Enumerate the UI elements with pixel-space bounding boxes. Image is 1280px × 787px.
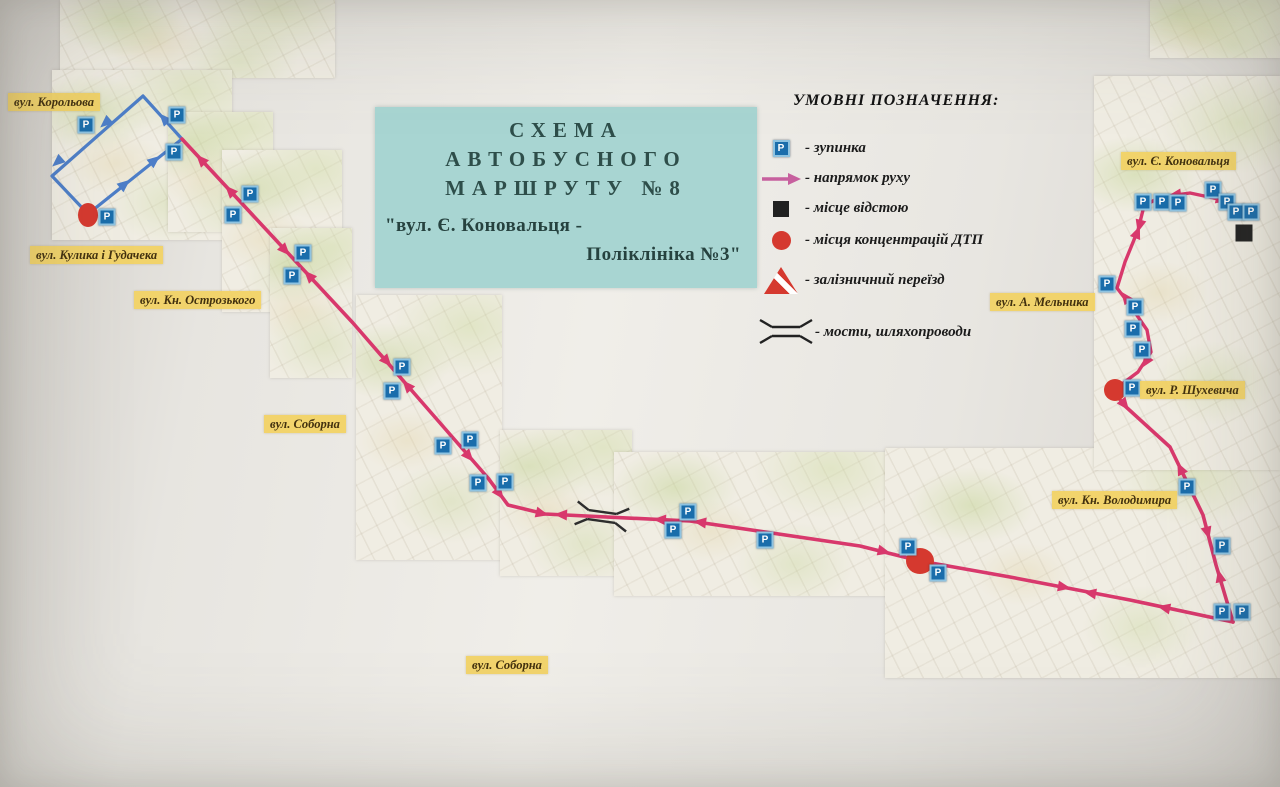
direction-arrowhead <box>554 509 568 521</box>
bus-stop-marker: P <box>1243 204 1260 221</box>
legend-item-label: - місця концентрацій ДТП <box>805 232 983 249</box>
legend-item-label: - залізничний переїзд <box>805 272 945 289</box>
bus-stop-marker: P <box>1124 380 1141 397</box>
accident-slot <box>757 231 805 250</box>
legend-title: УМОВНІ ПОЗНАЧЕННЯ: <box>793 92 1073 110</box>
legend-item: - мости, шляхопроводи <box>757 316 1073 348</box>
bus-stop-marker: P <box>225 207 242 224</box>
bus-stop-marker: P <box>1154 194 1171 211</box>
layover-square-icon <box>773 201 789 217</box>
bus-stop-marker: P <box>99 209 116 226</box>
title-box: СХЕМА АВТОБУСНОГО МАРШРУТУ №8 "вул. Є. К… <box>375 107 757 288</box>
bus-stop-marker: P <box>295 245 312 262</box>
legend-item-label: - мости, шляхопроводи <box>815 324 971 341</box>
bus-stop-marker: P <box>757 532 774 549</box>
bus-stop-slot: P <box>757 140 805 157</box>
route-endpoint-start: "вул. Є. Коновальця - <box>375 215 757 237</box>
bus-stop-marker: P <box>1170 195 1187 212</box>
layover-square <box>1236 225 1253 242</box>
legend: УМОВНІ ПОЗНАЧЕННЯ: P- зупинка- напрямок … <box>757 92 1073 348</box>
bus-stop-marker: P <box>900 539 917 556</box>
street-label: вул. Корольова <box>8 93 100 111</box>
bus-stop-marker: P <box>665 522 682 539</box>
legend-item: - залізничний переїзд <box>757 267 1073 294</box>
legend-item: - напрямок руху <box>757 170 1073 187</box>
street-label: вул. Кн. Острозького <box>134 291 261 309</box>
bridge-slot <box>757 316 815 348</box>
bus-stop-marker: P <box>1127 299 1144 316</box>
direction-arrow-slot <box>757 172 805 186</box>
bus-stop-marker: P <box>680 504 697 521</box>
direction-arrowhead <box>1172 460 1188 477</box>
street-label: вул. Кулика і Гудачека <box>30 246 163 264</box>
railway-crossing-icon <box>764 267 798 294</box>
bus-stop-marker: P <box>1125 321 1142 338</box>
bus-stop-marker: P <box>462 432 479 449</box>
bus-stop-marker: P <box>1099 276 1116 293</box>
legend-item: - місце відстою <box>757 200 1073 217</box>
legend-item-label: - напрямок руху <box>805 170 910 187</box>
bus-stop-marker: P <box>1134 342 1151 359</box>
street-label: вул. Кн. Володимира <box>1052 491 1177 509</box>
direction-arrowhead <box>1213 568 1227 583</box>
bus-stop-marker: P <box>242 186 259 203</box>
bus-stop-marker: P <box>1135 194 1152 211</box>
bus-stop-marker: P <box>384 383 401 400</box>
bus-stop-marker: P <box>1214 538 1231 555</box>
layover-slot <box>757 201 805 217</box>
title-line: СХЕМА <box>375 116 757 145</box>
accident-spot <box>78 203 98 227</box>
scanned-bus-route-map: PPPPPPPPPPPPPPPPPPPPPPPPPPPPPPPPPPP вул.… <box>0 0 1280 787</box>
bus-stop-marker: P <box>470 475 487 492</box>
bus-stop-marker: P <box>930 565 947 582</box>
legend-items: P- зупинка- напрямок руху- місце відстою… <box>757 140 1073 348</box>
direction-arrow-icon <box>761 172 801 186</box>
bus-stop-marker: P <box>284 268 301 285</box>
bus-stop-marker: P <box>1214 604 1231 621</box>
street-label: вул. Р. Шухевича <box>1140 381 1245 399</box>
bridge-icon <box>757 316 815 348</box>
title-line: АВТОБУСНОГО <box>375 145 757 174</box>
bus-stop-marker: P <box>394 359 411 376</box>
legend-item-label: - місце відстою <box>805 200 908 217</box>
bus-stop-marker: P <box>166 144 183 161</box>
bus-stop-marker: P <box>435 438 452 455</box>
street-label: вул. Є. Коновальця <box>1121 152 1236 170</box>
route-line-loop <box>52 96 182 214</box>
legend-item: P- зупинка <box>757 140 1073 157</box>
street-label: вул. Соборна <box>264 415 346 433</box>
legend-item: - місця концентрацій ДТП <box>757 231 1073 250</box>
bus-stop-marker: P <box>1234 604 1251 621</box>
accident-circle-icon <box>772 231 791 250</box>
bus-stop-marker: P <box>78 117 95 134</box>
legend-item-label: - зупинка <box>805 140 866 157</box>
bus-stop-marker: P <box>169 107 186 124</box>
route-endpoint-end: Поліклініка №3" <box>375 244 757 266</box>
street-label: вул. Соборна <box>466 656 548 674</box>
railway-crossing-slot <box>757 267 805 294</box>
bus-stop-marker: P <box>1179 479 1196 496</box>
title-line: МАРШРУТУ №8 <box>375 174 757 203</box>
bus-stop-marker: P <box>497 474 514 491</box>
bus-stop-icon: P <box>773 140 790 157</box>
